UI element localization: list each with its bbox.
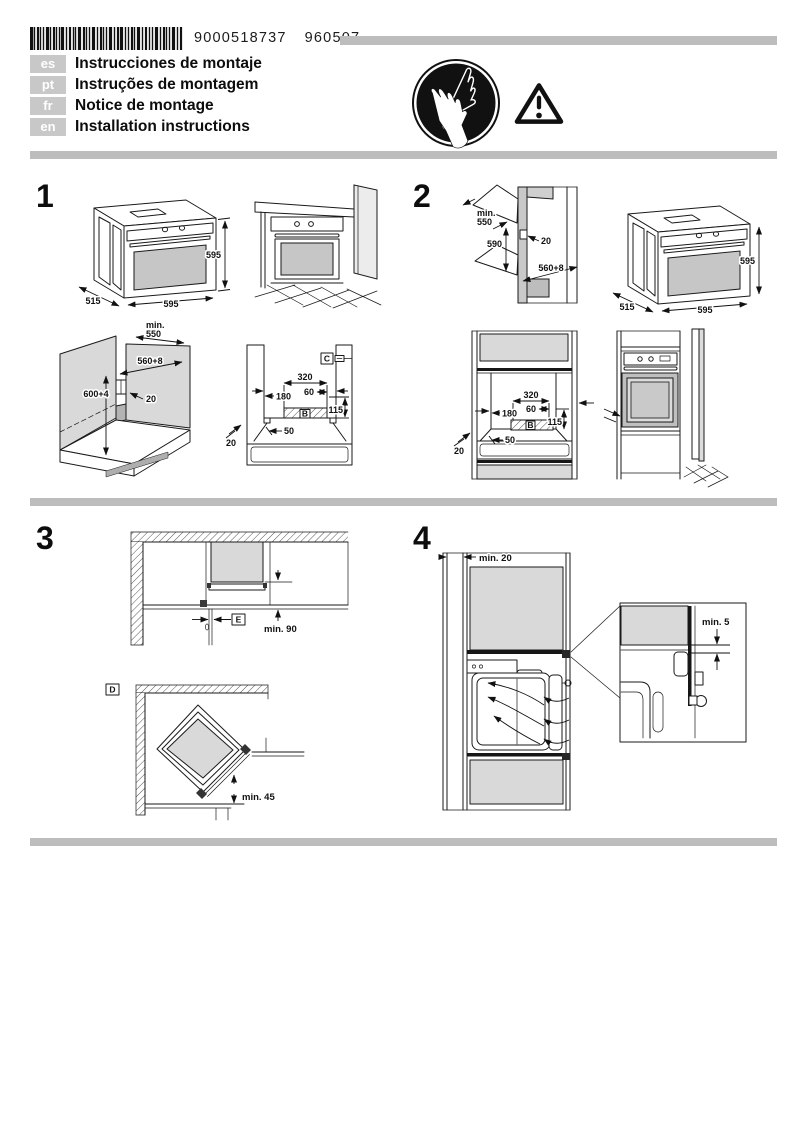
dim-oven-height: 595	[206, 250, 221, 260]
dim-min-90: min. 90	[264, 624, 297, 635]
language-tag-pt: pt	[30, 76, 66, 94]
dim-oven2-depth: 515	[619, 302, 634, 312]
section-4-number: 4	[413, 522, 431, 554]
language-row-fr: fr Notice de montage	[30, 97, 262, 115]
language-title-list: es Instrucciones de montaje pt Instruçõe…	[30, 55, 262, 139]
dim-niche2-height: 590	[487, 239, 502, 249]
label-e: E	[236, 615, 242, 625]
language-tag-es: es	[30, 55, 66, 73]
language-tag-fr: fr	[30, 97, 66, 115]
title-es: Instrucciones de montaje	[75, 55, 262, 73]
installation-instructions-page: 9000518737960507 es Instrucciones de mon…	[0, 0, 802, 1134]
dim2-115: 115	[547, 417, 562, 427]
language-row-es: es Instrucciones de montaje	[30, 55, 262, 73]
label-zone-b2: B	[527, 420, 533, 430]
dim-niche2-550: 550	[477, 217, 492, 227]
drawing-cutout-front-2: B 320 60 180 115 50 20	[442, 329, 602, 481]
footer-divider-bar	[30, 838, 777, 846]
dim2-320: 320	[523, 390, 538, 400]
protective-gloves-icon	[411, 58, 501, 148]
label-d: D	[109, 685, 115, 695]
section-2-number: 2	[413, 180, 431, 212]
title-en: Installation instructions	[75, 118, 250, 136]
barcode-number: 9000518737	[194, 30, 287, 46]
drawing-oven-under-counter	[251, 181, 396, 311]
barcode	[30, 27, 185, 50]
drawing-tall-cabinet-niche: min. 550 590 20 560+8	[455, 183, 590, 308]
dim-min-20: min. 20	[479, 553, 512, 564]
dim-20: 20	[226, 438, 236, 448]
dim-115: 115	[328, 405, 343, 415]
drawing-ventilation-tall-unit: min. 20 min. 5	[438, 540, 758, 822]
drawing-corner-clearance-top-view: E min. 90	[118, 526, 358, 656]
drawing-oven-in-tall-unit	[602, 327, 730, 489]
dim-60: 60	[304, 387, 314, 397]
language-tag-en: en	[30, 118, 66, 136]
drawing-base-cabinet-niche: min. 550 560+8 600+4 20	[46, 320, 221, 480]
section-3-number: 3	[36, 522, 54, 554]
dim-oven2-width: 595	[697, 305, 712, 315]
dim2-20: 20	[454, 446, 464, 456]
dim-niche-height: 600+4	[83, 389, 108, 399]
dim2-180: 180	[502, 409, 517, 419]
dim-niche-width: 560+8	[137, 356, 162, 366]
dim-min-45: min. 45	[242, 792, 275, 803]
section-1-number: 1	[36, 180, 54, 212]
label-clip-c: C	[324, 354, 330, 364]
drawing-oven-dimensions-2: 595 595 515	[602, 192, 767, 314]
dim-niche2-gap: 20	[541, 236, 551, 246]
label-zone-b: B	[302, 409, 308, 419]
title-fr: Notice de montage	[75, 97, 214, 115]
language-row-en: en Installation instructions	[30, 118, 262, 136]
dim-niche-gap: 20	[146, 394, 156, 404]
dim-niche2-width: 560+8	[538, 263, 563, 273]
warning-triangle-icon	[513, 81, 565, 126]
section-divider-bar-2	[30, 498, 777, 506]
dim-oven-width: 595	[163, 299, 178, 309]
dim-180: 180	[276, 392, 291, 402]
dim-320: 320	[297, 372, 312, 382]
dim-min-5: min. 5	[702, 617, 730, 628]
language-row-pt: pt Instruções de montagem	[30, 76, 262, 94]
dim2-50: 50	[505, 435, 515, 445]
drawing-corner-diagonal-install: D min. 45	[96, 674, 336, 822]
title-pt: Instruções de montagem	[75, 76, 258, 94]
section-divider-bar-1	[30, 151, 777, 159]
dim-niche-depth-550: 550	[146, 329, 161, 339]
drawing-cutout-front-1: B 320 60 180 115 50 20 C	[221, 340, 391, 482]
dim-oven-depth: 515	[85, 296, 100, 306]
dim-50: 50	[284, 426, 294, 436]
drawing-oven-dimensions-1: 595 595 515	[68, 186, 233, 308]
header-divider-bar	[340, 36, 777, 45]
dim2-60: 60	[526, 404, 536, 414]
dim-oven2-height: 595	[740, 256, 755, 266]
